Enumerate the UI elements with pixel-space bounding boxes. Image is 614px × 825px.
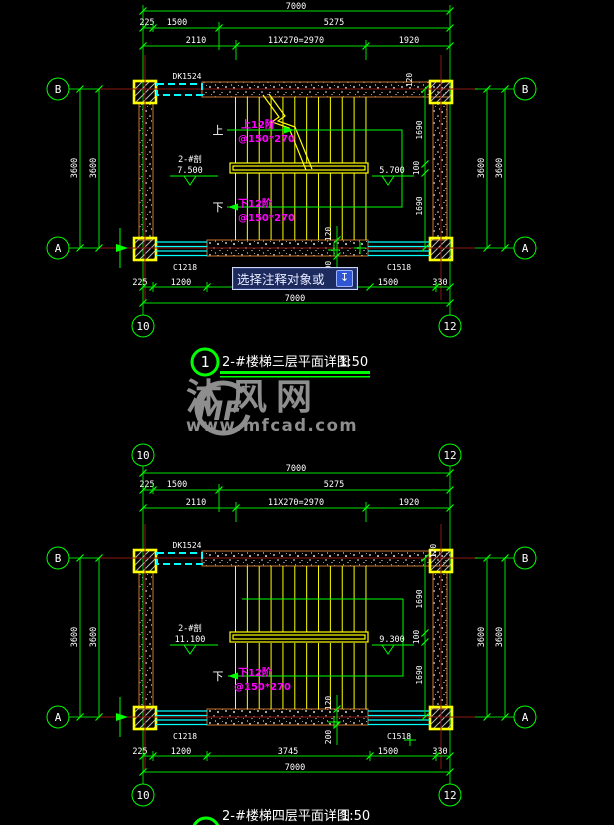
bottom-plan: DK1524 下 下12阶 @150*270 2-#剖 11.100 9.300 [47,444,536,825]
dim-row-2: 225 1500 5275 [139,18,453,32]
svg-text:11.100: 11.100 [175,635,206,645]
svg-text:3600: 3600 [495,627,505,647]
dim-right-inner: 120 1690 100 1690 [405,73,429,252]
stair-note: @150*270 [238,213,295,224]
svg-text:1690: 1690 [415,196,424,215]
drawing-scale: 1:50 [339,355,368,370]
svg-text:100: 100 [412,161,421,176]
cad-viewport: DK1524 上 下 上12阶 @150*270 下12阶 @150*270 [0,0,614,825]
grid-label-a: A [55,711,62,724]
svg-text:1500: 1500 [378,747,398,757]
svg-text:3600: 3600 [477,158,487,178]
svg-text:2110: 2110 [186,498,206,508]
svg-text:3600: 3600 [70,158,80,178]
svg-text:200: 200 [324,730,333,745]
mf-logo-icon: MF + [186,379,256,441]
dim-bottom-row: 225 1200 3745 1500 330 [132,747,453,761]
dim-right: 3600 3600 [477,555,509,721]
dim-row-total: 7000 [140,2,454,15]
svg-text:120: 120 [429,544,438,559]
walk-line [228,599,403,676]
section-arrow [116,697,128,737]
grid-label-12: 12 [443,320,456,333]
svg-text:330: 330 [432,278,447,288]
dim-left: 3600 3600 [70,555,103,721]
svg-text:2-#剖: 2-#剖 [178,623,202,634]
svg-text:3600: 3600 [495,158,505,178]
door-label: DK1524 [173,541,202,550]
svg-text:1200: 1200 [171,278,191,288]
stair-handrail [230,632,368,642]
walk-arrow-down [228,673,238,680]
title-block-1: 1 2-#楼梯三层平面详图 1:50 [192,349,370,378]
drawing-title: 2-#楼梯三层平面详图 [222,355,350,370]
dim-right: 3600 3600 [477,86,509,252]
level-mark-right: 9.300 [372,635,414,654]
tooltip-text: 选择注释对象或 [237,269,330,288]
dim-left: 3600 3600 [70,86,103,252]
watermark: MF + 沐风网 www.mfcad.com [186,379,358,434]
grid-label-12: 12 [443,789,456,802]
window-label: C1218 [173,263,197,272]
svg-text:1500: 1500 [167,480,187,490]
svg-text:7000: 7000 [286,2,306,12]
svg-text:225: 225 [132,278,147,288]
svg-text:1200: 1200 [171,747,191,757]
svg-text:2-#剖: 2-#剖 [178,154,202,165]
window-label: C1518 [387,732,411,741]
svg-text:225: 225 [139,18,154,28]
svg-text:3745: 3745 [278,747,298,757]
svg-text:9.300: 9.300 [379,635,405,645]
grid-label-a: A [55,242,62,255]
right-wall [433,103,447,240]
level-mark-left: 2-#剖 11.100 [170,623,218,654]
stair-note: @150*270 [234,682,291,693]
level-mark-right: 5.700 [372,166,414,185]
window-label: C1218 [173,732,197,741]
svg-text:5275: 5275 [324,18,344,28]
down-label: 下 [213,670,224,683]
stair-note: 下12阶 [238,197,273,210]
section-arrow [116,228,128,268]
dim-bottom-total: 7000 [140,294,454,307]
walk-arrow-down [228,204,238,211]
drawing-title: 2-#楼梯四层平面详图 [222,809,350,824]
svg-text:7000: 7000 [285,763,305,773]
door-label: DK1524 [173,72,202,81]
svg-text:11X270=2970: 11X270=2970 [268,36,324,46]
svg-text:1500: 1500 [167,18,187,28]
svg-text:3600: 3600 [477,627,487,647]
grid-label-a: A [522,711,529,724]
svg-text:100: 100 [412,630,421,645]
svg-text:+: + [240,379,252,395]
svg-text:1690: 1690 [415,665,424,684]
grid-label-12: 12 [443,449,456,462]
svg-text:MF: MF [196,396,242,427]
svg-text:7.500: 7.500 [177,166,203,176]
stair-handrail [230,163,368,173]
svg-text:120: 120 [405,73,414,88]
svg-text:5.700: 5.700 [379,166,405,176]
title-number: 1 [200,353,209,371]
grid-label-b: B [55,552,62,565]
window-c1518 [368,711,430,725]
left-wall [139,572,153,709]
dim-bottom-total: 7000 [140,763,454,776]
grid-label-10: 10 [136,789,149,802]
svg-text:120: 120 [324,227,333,242]
download-arrow-icon[interactable]: ↧ [336,270,353,287]
grid-bubbles-top: 10 12 [132,444,461,466]
svg-text:5275: 5275 [324,480,344,490]
stair-note: @150*270 [238,134,295,145]
svg-text:225: 225 [139,480,154,490]
grid-label-b: B [522,552,529,565]
svg-text:3600: 3600 [89,627,99,647]
svg-text:7000: 7000 [286,464,306,474]
down-label: 下 [213,201,224,214]
grid-label-a: A [522,242,529,255]
svg-text:1690: 1690 [415,120,424,139]
svg-text:3600: 3600 [89,158,99,178]
top-plan: DK1524 上 下 上12阶 @150*270 下12阶 @150*270 [47,2,536,378]
svg-text:120: 120 [324,696,333,711]
svg-text:2110: 2110 [186,36,206,46]
window-c1518 [368,242,430,256]
grid-label-10: 10 [136,320,149,333]
svg-text:1920: 1920 [399,36,419,46]
grid-label-b: B [55,83,62,96]
svg-text:1500: 1500 [378,278,398,288]
svg-text:3600: 3600 [70,627,80,647]
window-c1218 [156,242,207,256]
svg-text:225: 225 [132,747,147,757]
dim-row-total: 7000 [140,464,454,477]
drawing-scale: 1:50 [341,809,370,824]
level-mark-left: 2-#剖 7.500 [170,154,218,185]
window-label: C1518 [387,263,411,272]
dim-row-2: 225 1500 5275 [139,480,453,494]
left-wall [139,103,153,240]
right-wall [433,572,447,709]
window-c1218 [156,711,207,725]
svg-text:7000: 7000 [285,294,305,304]
grid-label-10: 10 [136,449,149,462]
up-label: 上 [213,124,224,137]
title-block-2: 2 2-#楼梯四层平面详图 1:50 [193,809,370,825]
svg-text:330: 330 [432,747,447,757]
svg-text:11X270=2970: 11X270=2970 [268,498,324,508]
svg-text:1690: 1690 [415,589,424,608]
svg-text:1920: 1920 [399,498,419,508]
stair-note: 下12阶 [238,666,273,679]
command-tooltip[interactable]: 选择注释对象或 ↧ [232,267,358,290]
stair-note: 上12阶 [241,118,276,131]
grid-label-b: B [522,83,529,96]
